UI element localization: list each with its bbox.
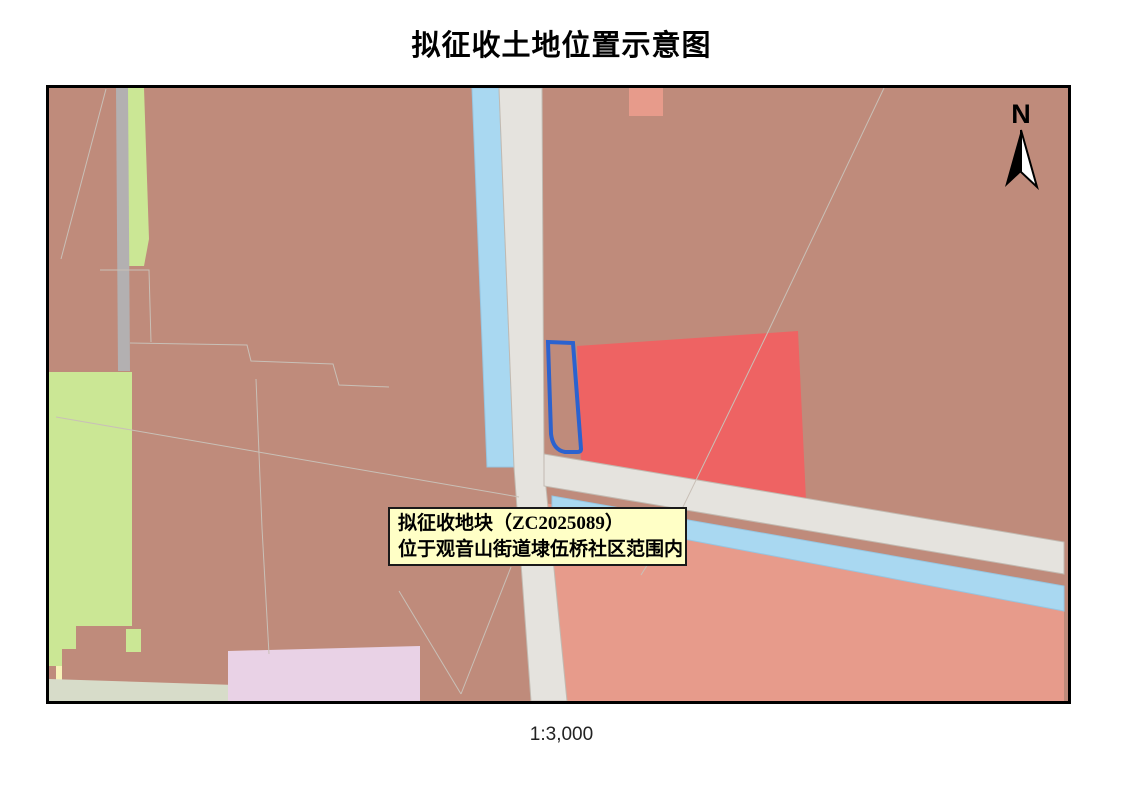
- page: 拟征收土地位置示意图: [0, 0, 1123, 794]
- green-parcel-notch: [126, 629, 141, 652]
- salmon-parcel-north: [629, 88, 663, 116]
- road-minor-west: [116, 88, 130, 371]
- annotation-line1: 拟征收地块（ZC2025089）: [398, 511, 677, 537]
- north-arrow-label: N: [1011, 99, 1031, 129]
- map-title: 拟征收土地位置示意图: [0, 22, 1123, 64]
- annotation-line2: 位于观音山街道埭伍桥社区范围内: [398, 537, 677, 563]
- map-canvas: N: [49, 88, 1068, 701]
- scale-label: 1:3,000: [0, 724, 1123, 746]
- annotation-box: 拟征收地块（ZC2025089） 位于观音山街道埭伍桥社区范围内: [388, 507, 687, 566]
- pink-parcel: [228, 646, 420, 701]
- green-parcel-large: [49, 372, 132, 666]
- map-frame: N: [46, 85, 1071, 704]
